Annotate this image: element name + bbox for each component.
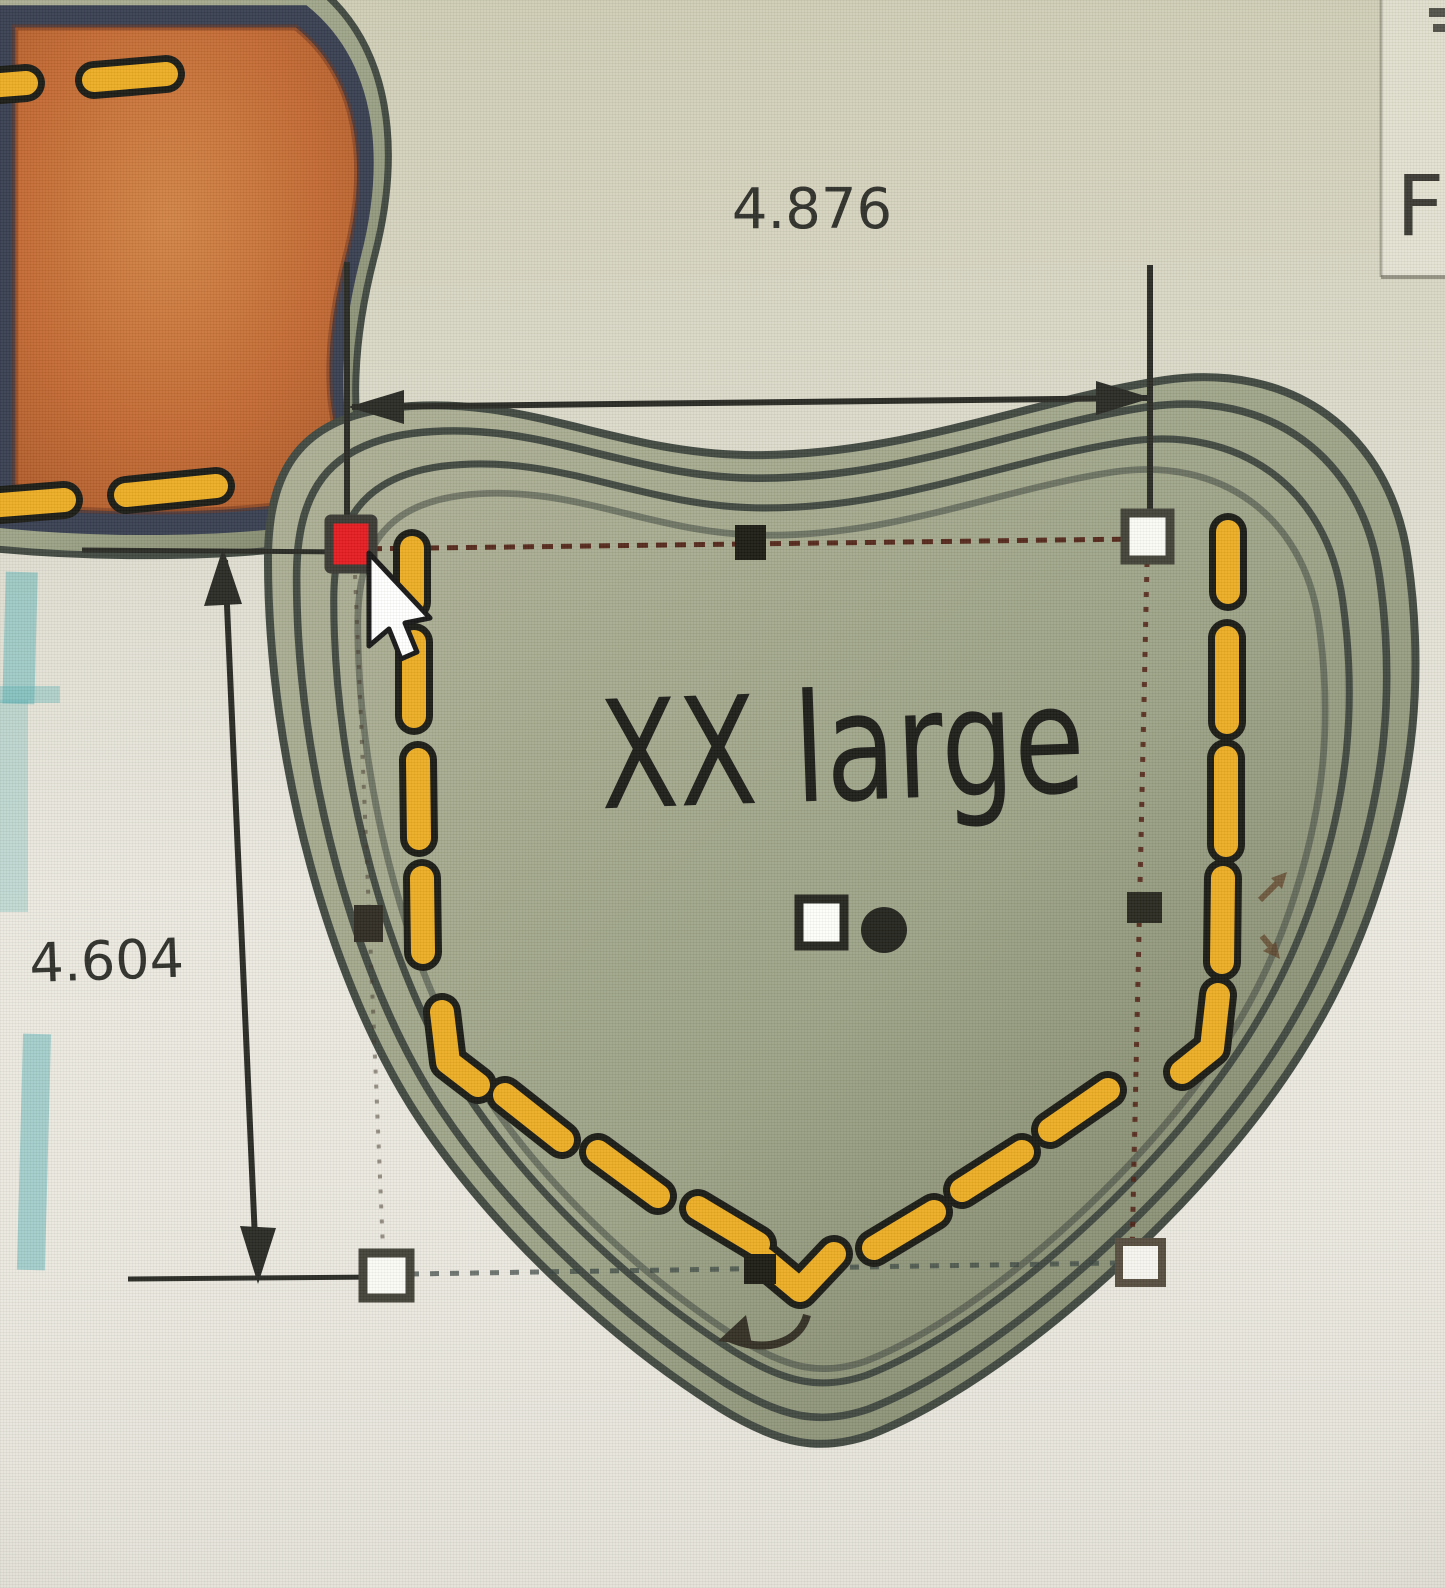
design-canvas[interactable]: F [0,0,1445,1588]
selection-handle-top-right[interactable] [1125,513,1170,560]
selection-handle-top-left[interactable] [329,519,373,569]
panel-corner: F [1381,0,1445,277]
selection-handle-bottom-left[interactable] [363,1253,410,1298]
selection-handle-bottom-middle[interactable] [744,1254,776,1284]
design-text-label[interactable]: XX large [597,654,1088,845]
selection-handle-bottom-right[interactable] [1119,1242,1162,1283]
height-dimension-line [225,560,256,1262]
height-arrow-down-icon [240,1226,276,1284]
selection-center-square[interactable] [799,899,844,946]
selection-center-dot[interactable] [861,907,907,953]
partial-side-text: F [1396,157,1444,255]
selection-handle-left-middle[interactable] [354,905,383,942]
partial-glyph-mark [1433,24,1445,32]
selection-handle-top-middle[interactable] [735,525,766,560]
height-dimension-label: 4.604 [28,927,185,995]
mat-grid-strip [0,572,60,1271]
width-dimension-label: 4.876 [732,177,892,242]
selection-handle-right-middle[interactable] [1127,892,1162,923]
partial-glyph-mark [1429,8,1445,17]
height-extension-line-top [82,550,348,552]
design-workspace: F [0,0,1445,1588]
